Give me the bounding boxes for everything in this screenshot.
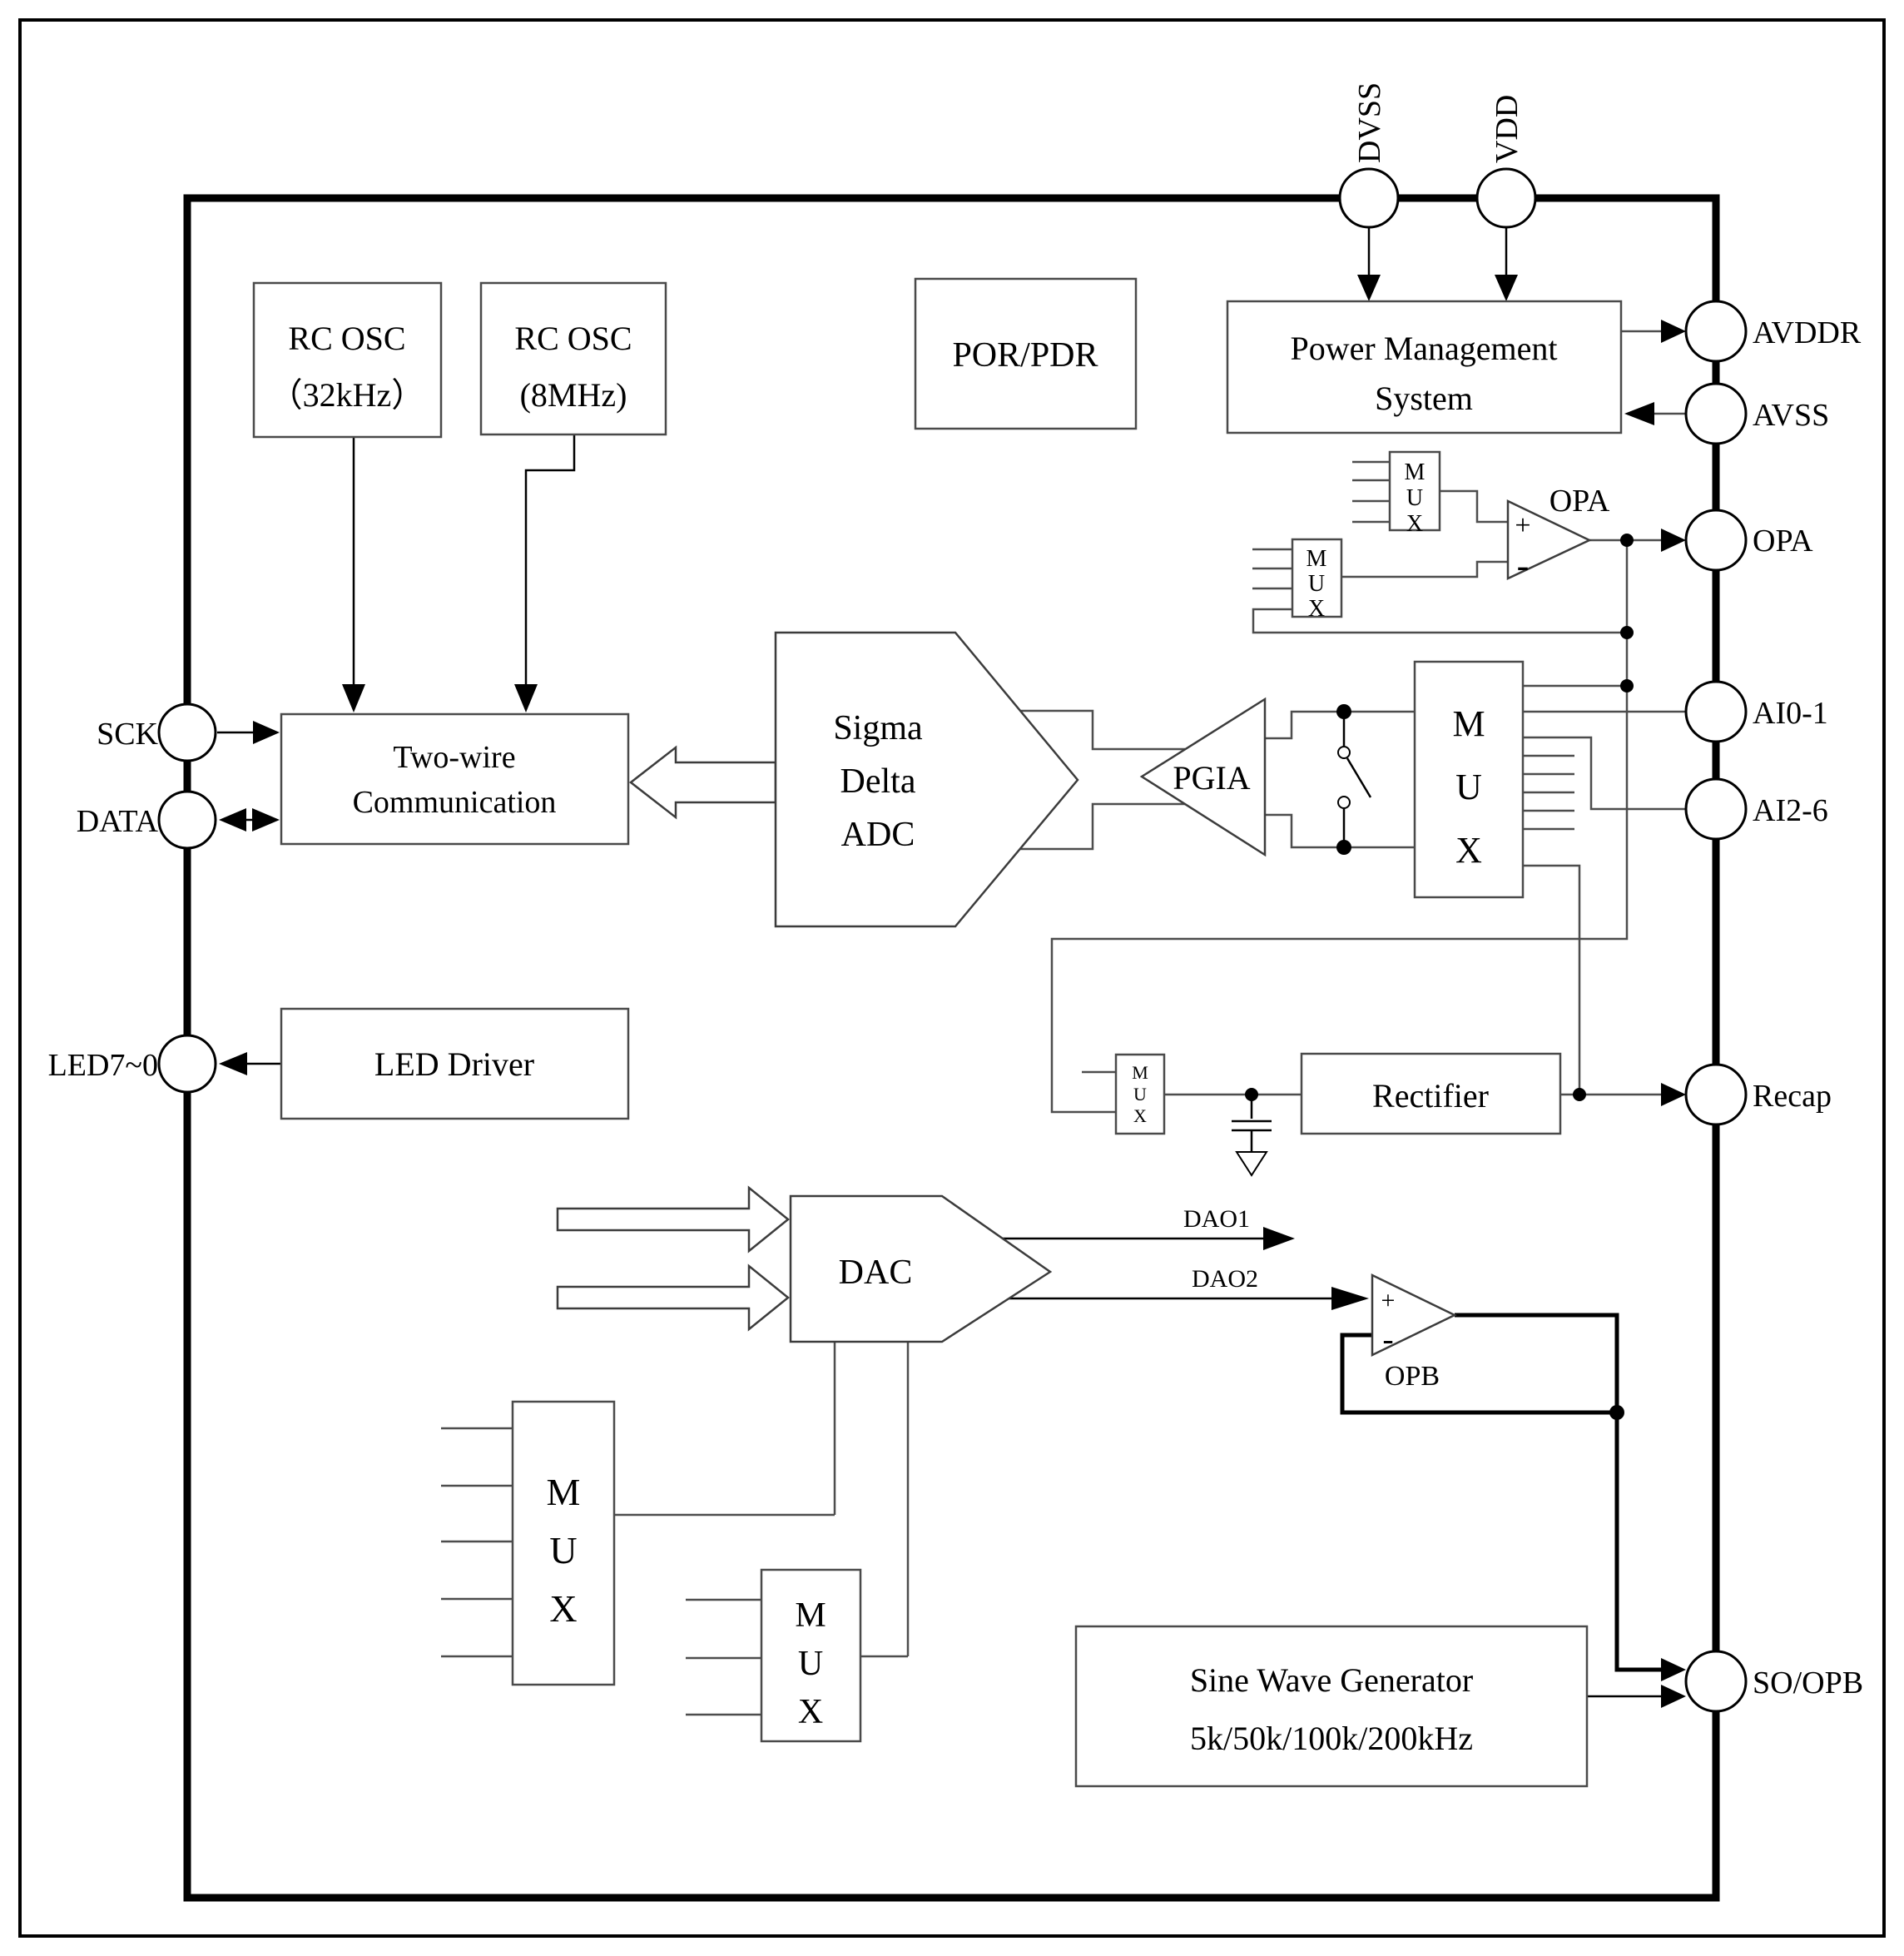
mux-letter-u: U <box>549 1529 577 1571</box>
junction-dot <box>1245 1088 1258 1101</box>
mux-letter-m: M <box>1307 546 1327 572</box>
mux-letter-x: X <box>1455 830 1482 871</box>
arrowhead-recap <box>1661 1083 1686 1106</box>
power-management-label-1: Power Management <box>1290 330 1557 367</box>
pin-recap <box>1686 1065 1746 1124</box>
pin-avss-label: AVSS <box>1753 398 1829 433</box>
arrowhead-data-right <box>252 808 280 832</box>
junction-dot <box>1620 679 1634 693</box>
pin-opa <box>1686 510 1746 570</box>
pin-vdd-label: VDD <box>1490 95 1525 163</box>
mux-letter-m: M <box>547 1471 581 1513</box>
dao1-label: DAO1 <box>1183 1205 1250 1233</box>
pin-soopb-label: SO/OPB <box>1753 1666 1863 1700</box>
sigma-delta-adc-shape <box>776 633 1078 926</box>
junction-dot <box>1336 704 1351 719</box>
dac-input-bus-arrow-2 <box>558 1266 788 1329</box>
opb-amplifier: + - OPB <box>1372 1275 1455 1392</box>
arrowhead-dao2 <box>1331 1287 1369 1310</box>
mux-letter-u: U <box>1133 1084 1147 1105</box>
mux-letter-m: M <box>1452 703 1485 744</box>
pgia-label: PGIA <box>1173 759 1250 797</box>
mux-letter-x: X <box>1406 511 1423 537</box>
rc-osc-32k-box <box>254 283 441 437</box>
pin-avddr-label: AVDDR <box>1753 315 1862 350</box>
mux-letter-u: U <box>1406 485 1423 511</box>
pin-ai26 <box>1686 779 1746 839</box>
pin-avddr <box>1686 301 1746 361</box>
rc-osc-8m-label-2: (8MHz) <box>520 376 627 414</box>
sine-wave-generator-block: Sine Wave Generator 5k/50k/100k/200kHz <box>1076 1626 1587 1786</box>
switch-contact-bottom <box>1338 797 1350 808</box>
two-wire-communication-block: Two-wire Communication <box>281 714 628 844</box>
dac-mux-2: M U X <box>761 1570 860 1741</box>
analog-mux-a: M U X <box>1390 452 1440 537</box>
arrowhead-rc8 <box>514 684 538 712</box>
arrowhead-rc32 <box>342 684 365 712</box>
chip-block-diagram: RC OSC （32kHz） RC OSC (8MHz) POR/PDR Pow… <box>0 0 1904 1956</box>
arrowhead-avddr <box>1661 320 1686 343</box>
pin-avss <box>1686 384 1746 444</box>
led-driver-block: LED Driver <box>281 1009 628 1119</box>
power-management-block: Power Management System <box>1227 301 1621 433</box>
mux-letter-u: U <box>1455 767 1482 807</box>
arrowhead-swg <box>1661 1685 1686 1708</box>
arrowhead-vdd <box>1495 275 1518 301</box>
mux-letter-m: M <box>795 1596 826 1635</box>
adc-label-1: Sigma <box>833 709 923 747</box>
ground-icon <box>1237 1152 1267 1175</box>
input-mux: M U X <box>1415 662 1523 897</box>
opb-plus: + <box>1381 1287 1396 1314</box>
switch <box>1338 717 1371 841</box>
opa-plus: + <box>1515 510 1530 541</box>
mux-letter-x: X <box>798 1693 823 1731</box>
arrowhead-opb-soopb <box>1661 1658 1686 1681</box>
mux-letter-u: U <box>1308 571 1325 597</box>
rectifier-block: Rectifier <box>1302 1054 1560 1134</box>
mux-letter-x: X <box>1308 596 1325 622</box>
rectifier-mux: M U X <box>1116 1055 1164 1134</box>
rc-osc-32k-block: RC OSC （32kHz） <box>254 283 441 437</box>
analog-mux-b: M U X <box>1292 539 1341 622</box>
two-wire-label-1: Two-wire <box>393 740 515 775</box>
arrowhead-led <box>219 1052 247 1075</box>
dac-mux-1: M U X <box>513 1402 614 1685</box>
adc-twc-bus-arrow <box>631 747 776 817</box>
pin-recap-label: Recap <box>1753 1079 1832 1114</box>
pin-led-label: LED7~0 <box>48 1048 158 1083</box>
pin-dvss <box>1340 169 1398 227</box>
pin-data-label: DATA <box>77 804 159 839</box>
pin-opa-label: OPA <box>1753 524 1813 559</box>
capacitor <box>1232 1095 1272 1175</box>
swg-label-1: Sine Wave Generator <box>1190 1661 1473 1699</box>
wire-opb-soopb <box>1617 1412 1661 1670</box>
arrowhead-opa <box>1661 529 1686 552</box>
led-driver-label: LED Driver <box>374 1045 534 1083</box>
por-pdr-label: POR/PDR <box>952 336 1098 375</box>
pin-ai26-label: AI2-6 <box>1753 793 1828 828</box>
swg-label-2: 5k/50k/100k/200kHz <box>1190 1720 1473 1757</box>
por-pdr-block: POR/PDR <box>915 279 1136 429</box>
junction-dot <box>1573 1088 1586 1101</box>
rc-osc-32k-label-1: RC OSC <box>288 320 405 357</box>
dac-label: DAC <box>839 1254 913 1292</box>
adc-label-3: ADC <box>841 816 915 854</box>
power-management-label-2: System <box>1375 380 1473 417</box>
dac-block: DAC <box>791 1196 1050 1342</box>
adc-label-2: Delta <box>840 762 916 801</box>
junction-dot <box>1336 840 1351 855</box>
junction-dot <box>1620 626 1634 639</box>
sine-wave-generator-box <box>1076 1626 1587 1786</box>
junction-dot <box>1609 1405 1624 1420</box>
pin-data <box>159 792 216 848</box>
pin-dvss-label: DVSS <box>1352 82 1387 163</box>
two-wire-label-2: Communication <box>353 785 557 820</box>
arrowhead-dao1 <box>1263 1227 1295 1250</box>
pin-ai01-label: AI0-1 <box>1753 696 1828 731</box>
pin-vdd <box>1477 169 1535 227</box>
pin-soopb <box>1686 1651 1746 1711</box>
mux-letter-x: X <box>1133 1105 1147 1126</box>
opa-minus: - <box>1517 545 1530 586</box>
wire-rc8-twc <box>526 434 574 684</box>
opb-label: OPB <box>1385 1361 1440 1392</box>
pin-sck <box>159 704 216 761</box>
rc-osc-8m-label-1: RC OSC <box>514 320 632 357</box>
arrowhead-data-left <box>219 808 246 832</box>
rectifier-label: Rectifier <box>1372 1077 1489 1115</box>
dac-shape <box>791 1196 1050 1342</box>
pin-led <box>159 1035 216 1092</box>
wire-opa-junction-vertical <box>1052 540 1627 1112</box>
rc-osc-32k-label-2: （32kHz） <box>270 376 425 414</box>
switch-blade <box>1347 758 1371 797</box>
switch-contact-top <box>1338 747 1350 758</box>
pin-sck-label: SCK <box>97 717 158 752</box>
junction-dot <box>1620 534 1634 547</box>
sigma-delta-adc-block: Sigma Delta ADC <box>776 633 1078 926</box>
pin-ai01 <box>1686 682 1746 742</box>
arrowhead-avss <box>1624 402 1654 425</box>
dac-input-bus-arrow-1 <box>558 1188 788 1251</box>
mux-letter-x: X <box>549 1587 577 1630</box>
arrowhead-dvss <box>1357 275 1381 301</box>
mux-letter-u: U <box>798 1645 823 1683</box>
mux-letter-m: M <box>1405 459 1426 485</box>
two-wire-box <box>281 714 628 844</box>
opb-minus: - <box>1382 1320 1393 1358</box>
wire-muxa-opa-plus <box>1440 491 1508 522</box>
wires <box>217 226 1688 1715</box>
mux-letter-m: M <box>1132 1062 1148 1083</box>
rc-osc-8m-block: RC OSC (8MHz) <box>481 283 666 434</box>
opa-amplifier: OPA + - <box>1508 484 1610 586</box>
arrowhead-sck <box>253 721 280 744</box>
pgia-amplifier: PGIA <box>1142 699 1265 855</box>
wire-muxb-opa-minus <box>1341 562 1508 577</box>
opa-label: OPA <box>1549 484 1610 519</box>
dao2-label: DAO2 <box>1192 1265 1258 1293</box>
